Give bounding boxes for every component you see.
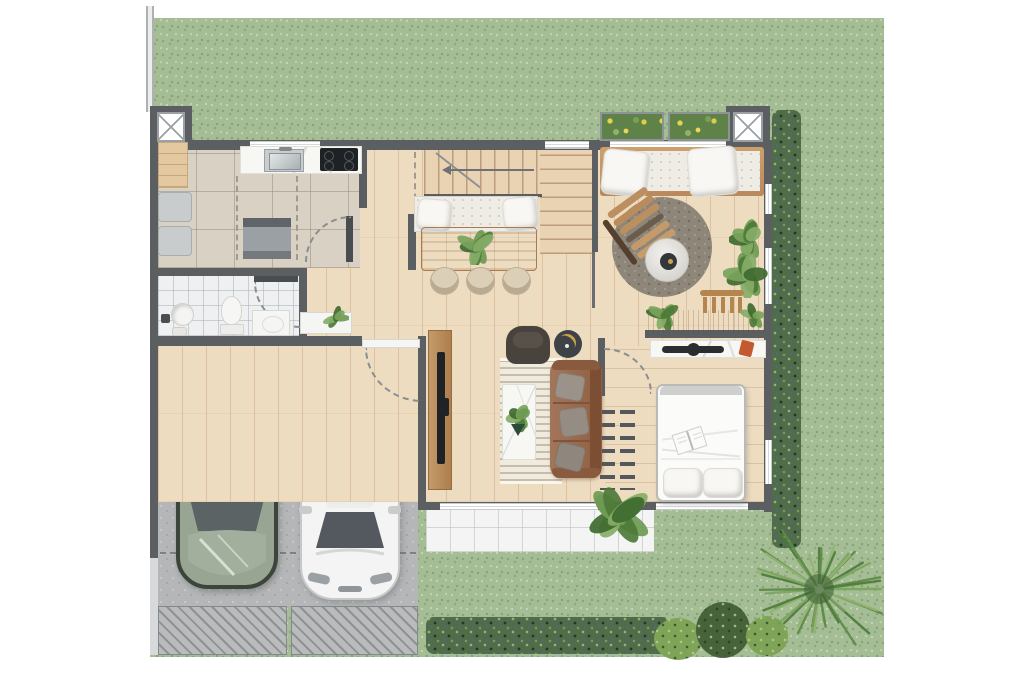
stairs-direction-arrow <box>450 169 534 171</box>
wall-stairs <box>592 148 598 252</box>
stairs-rail-lower <box>592 252 595 308</box>
garage-door-leaf <box>362 339 420 348</box>
faucet-icon <box>279 147 292 151</box>
overhead-cabinet-dash-2 <box>296 176 298 260</box>
wall-bath-top <box>150 268 307 276</box>
kitchen-island <box>243 218 291 259</box>
driveway-side-strip <box>150 556 158 655</box>
window-right-3 <box>765 440 772 484</box>
round-bush-2 <box>696 602 750 658</box>
dark-armchair <box>506 326 550 364</box>
bottom-hedge <box>426 617 670 654</box>
column-left-x-icon <box>157 112 185 142</box>
sofa-backrest <box>590 362 601 476</box>
bed-pillow-right <box>703 468 743 498</box>
floor-plan-scene <box>0 0 1024 683</box>
study-plant-right <box>740 302 767 329</box>
clothes-rack-left <box>600 410 615 490</box>
patio-plant <box>584 486 652 546</box>
stairs-arrowhead <box>442 165 451 175</box>
window-top-stairs <box>545 141 589 149</box>
study-plant-left <box>646 300 682 330</box>
bath-tap <box>161 314 170 323</box>
entry-plant <box>323 306 349 330</box>
window-bottom-living <box>440 503 598 510</box>
driveway-hatch-right <box>291 606 418 655</box>
dining-chair-1 <box>430 267 459 295</box>
tv-stand <box>444 398 449 416</box>
window-right-1 <box>765 184 772 214</box>
wall-garage-top-a <box>150 336 362 346</box>
leather-sofa <box>550 360 602 478</box>
tray-gold-dot <box>668 259 673 264</box>
dining-chair-2 <box>466 267 495 295</box>
clothes-rack-right <box>620 410 635 490</box>
planter-box-left <box>600 112 664 141</box>
stairs-right-flight <box>540 150 592 254</box>
left-fence <box>146 6 154 112</box>
side-table <box>554 330 582 358</box>
kitchen-tall-cabinet <box>158 142 188 188</box>
bath-round-basin <box>171 303 194 326</box>
sofa-cushion-1 <box>554 372 586 402</box>
sofa-cushion-2 <box>558 406 590 438</box>
soundbar-lens <box>687 343 700 356</box>
bed-headboard <box>660 386 742 395</box>
kitchen-cooktop <box>320 148 358 171</box>
dining-chair-3 <box>502 267 531 295</box>
bath-vanity <box>252 310 290 336</box>
daybed-pillow-right <box>686 145 740 198</box>
round-bush-1 <box>654 618 702 660</box>
driveway-hatch-left <box>158 606 287 655</box>
toilet <box>220 296 244 336</box>
large-tree <box>748 518 890 660</box>
dining-plant <box>456 229 498 265</box>
dryer <box>158 226 192 256</box>
kitchen-sink <box>264 149 304 172</box>
bath-stool <box>172 327 187 336</box>
washer <box>158 192 192 222</box>
column-right-x-icon <box>733 112 763 142</box>
study-chair <box>700 290 744 321</box>
overhead-cabinet-dash-1 <box>236 176 238 260</box>
right-hedge <box>772 110 801 548</box>
bed-pillow-left <box>663 468 703 498</box>
wall-left <box>150 140 158 558</box>
planter-box-right <box>668 112 730 141</box>
window-bottom-bedroom <box>656 503 748 510</box>
